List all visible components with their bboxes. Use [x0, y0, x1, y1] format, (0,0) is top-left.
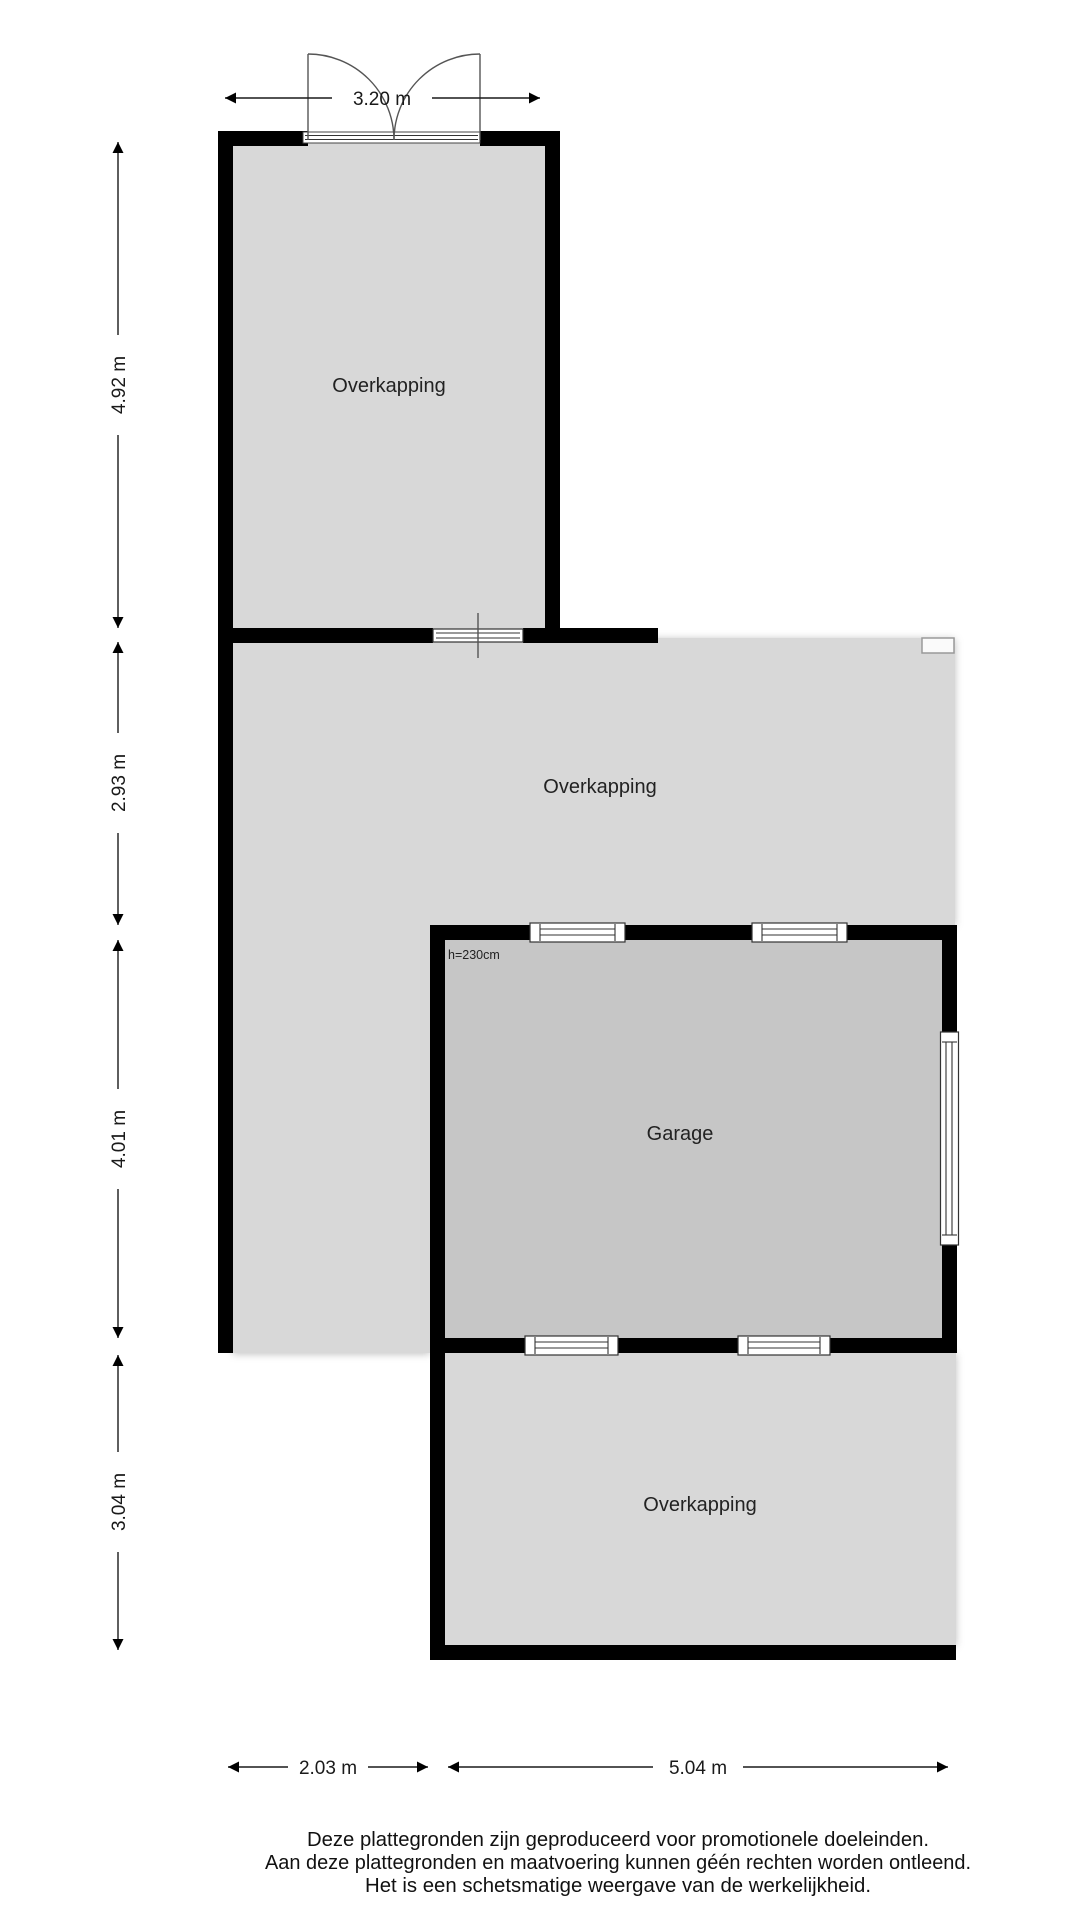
garage-window-3 — [525, 1336, 618, 1355]
window-frame — [752, 923, 847, 942]
garage-window-2 — [752, 923, 847, 942]
garage-window-right — [941, 1032, 959, 1245]
garage-window-4 — [738, 1336, 830, 1355]
wall-garage-left — [430, 925, 445, 1353]
dimension-left-garage: 4.01 m — [109, 940, 130, 1338]
door-threshold — [303, 132, 480, 143]
floor-middle-left-strip — [233, 925, 430, 1353]
floor-plan: Overkapping Overkapping Garage h=230cm O… — [0, 0, 1080, 1920]
wall-bottom-room-left — [430, 1353, 445, 1660]
dimension-value: 5.04 m — [669, 1758, 727, 1779]
label-garage-height: h=230cm — [448, 948, 500, 962]
window-frame — [738, 1336, 830, 1355]
window-frame — [941, 1032, 959, 1245]
dimension-bottom-left: 2.03 m — [228, 1758, 428, 1779]
dimension-left-middle: 2.93 m — [109, 642, 130, 925]
dimension-top-width: 3.20 m — [225, 89, 540, 110]
footer-disclaimer: Deze plattegronden zijn geproduceerd voo… — [265, 1829, 971, 1897]
dimension-left-bottom: 3.04 m — [109, 1355, 130, 1650]
wall-garage-top — [430, 925, 957, 940]
footer-line-2: Aan deze plattegronden en maatvoering ku… — [265, 1852, 971, 1874]
dimension-value: 3.04 m — [109, 1473, 130, 1531]
dimension-value: 2.03 m — [299, 1758, 357, 1779]
corner-post-marker — [922, 638, 954, 653]
wall-bottom-room-bottom — [430, 1645, 956, 1660]
dimension-left-top: 4.92 m — [109, 142, 130, 628]
window-frame — [530, 923, 625, 942]
wall-top-room-right — [545, 131, 560, 643]
wall-garage-bottom — [430, 1338, 957, 1353]
dimension-value: 4.01 m — [109, 1110, 130, 1168]
label-garage: Garage — [647, 1123, 714, 1145]
dimension-value: 2.93 m — [109, 754, 130, 812]
garage-window-1 — [530, 923, 625, 942]
dimension-value: 4.92 m — [109, 356, 130, 414]
label-overkapping-middle: Overkapping — [543, 776, 656, 798]
floor-areas — [233, 142, 956, 1645]
footer-line-1: Deze plattegronden zijn geproduceerd voo… — [307, 1829, 929, 1851]
dimension-bottom-right: 5.04 m — [448, 1758, 948, 1779]
dimension-value: 3.20 m — [353, 89, 411, 110]
window-frame — [525, 1336, 618, 1355]
label-overkapping-bottom: Overkapping — [643, 1494, 756, 1516]
wall-top-left-of-door — [218, 131, 308, 146]
wall-top-room-bottom-left — [218, 628, 433, 643]
wall-top-room-bottom-right — [523, 628, 658, 643]
wall-left-outer — [218, 131, 233, 1353]
footer-line-3: Het is een schetsmatige weergave van de … — [365, 1875, 871, 1897]
label-overkapping-top: Overkapping — [332, 375, 445, 397]
